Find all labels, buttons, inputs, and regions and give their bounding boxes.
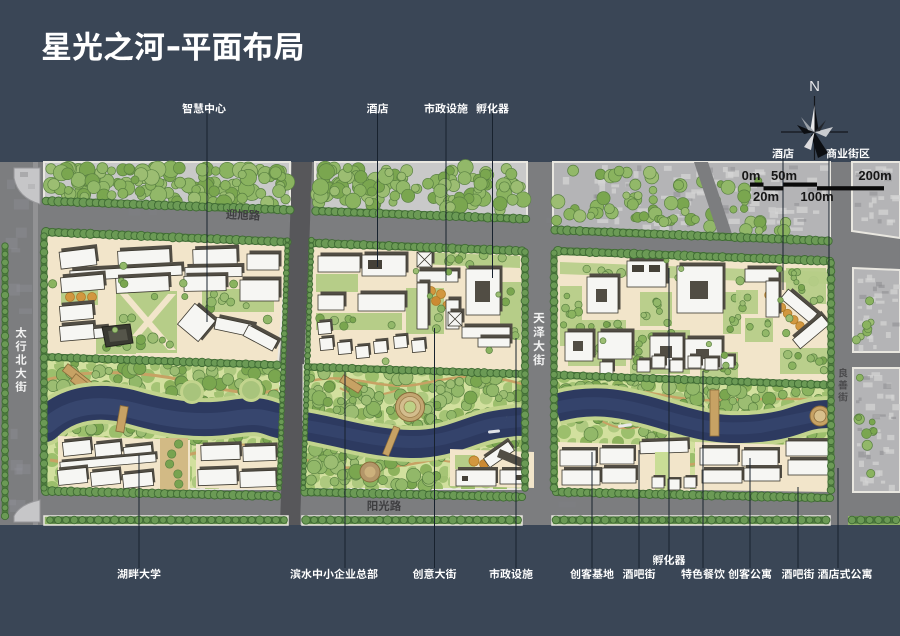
svg-text:N: N (809, 78, 820, 95)
svg-text:200m: 200m (858, 168, 891, 183)
svg-text:0m: 0m (742, 168, 761, 183)
svg-text:20m: 20m (753, 189, 779, 204)
svg-text:50m: 50m (771, 168, 797, 183)
svg-text:100m: 100m (800, 189, 833, 204)
